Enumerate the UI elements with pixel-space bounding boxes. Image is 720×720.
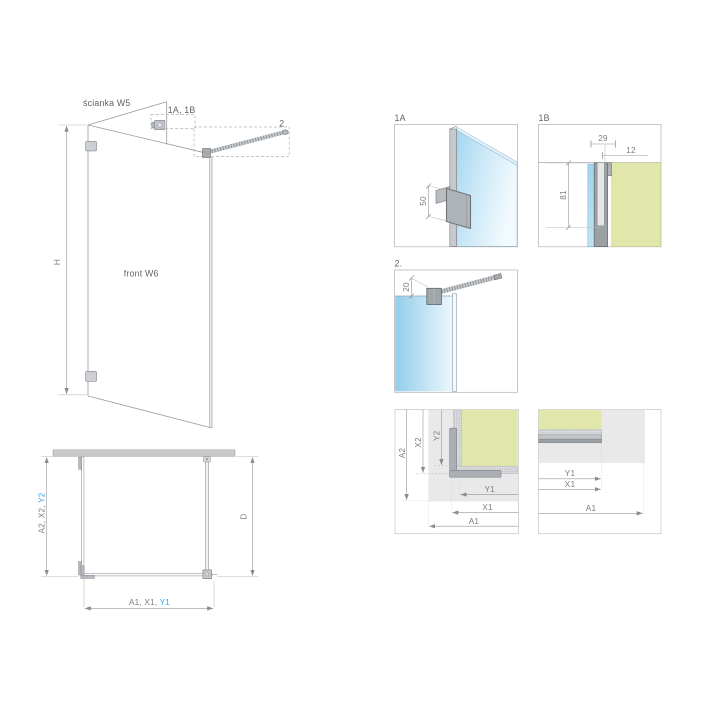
x2-label: X2 — [414, 437, 423, 448]
glass-edge-strip-2 — [452, 294, 456, 392]
detail-2-title: 2. — [395, 259, 403, 269]
detail-1a: 1A 50 — [395, 113, 518, 247]
dim81-label: 81 — [559, 190, 568, 200]
w6-panel-plan — [82, 574, 212, 576]
x1-label-2: X1 — [565, 480, 576, 489]
plan-view: A2, X2, Y2 D A1, X1, Y1 — [37, 450, 258, 609]
detail-1a-title: 1A — [395, 113, 406, 123]
callout-label-1ab: 1A, 1B — [168, 105, 196, 115]
glass-pane-2 — [395, 296, 452, 391]
corner-connector-h — [81, 575, 95, 578]
wall-dimension-diagram: Y1 X1 A1 — [538, 410, 661, 534]
dim50-label: 50 — [419, 196, 428, 206]
profile-strip-dark — [539, 439, 602, 443]
detail-2: 2. 20 — [395, 259, 518, 393]
edge-profile-1a — [450, 129, 457, 246]
corner-dimension-diagram: A2 X2 Y2 Y1 X1 A1 — [395, 410, 518, 534]
a1-label: A1 — [469, 517, 480, 526]
callout-label-2: 2 — [279, 118, 284, 128]
profile-strip-light — [539, 435, 602, 439]
wall-bracket-screw — [157, 123, 162, 128]
a1-label-2: A1 — [586, 504, 597, 513]
wall-section-plan — [539, 410, 602, 430]
w5-bracket-top-plan — [79, 457, 82, 469]
bottom-dimension-label: A1, X1, Y1 — [129, 598, 170, 607]
detail-1b: 1B 29 12 81 — [539, 113, 662, 247]
w5-panel-plan — [82, 456, 84, 576]
glass-section-1b — [588, 164, 594, 247]
wall-section-1b — [612, 163, 661, 247]
y1-label-2: Y1 — [565, 469, 576, 478]
front-panel-label: front W6 — [124, 268, 159, 278]
y1-label: Y1 — [485, 485, 496, 494]
view-3d: ścianka W5 1A, 1B 2 H front W6 — [53, 98, 289, 428]
wall-panel-label: ścianka W5 — [83, 98, 130, 108]
h-extension-lines — [59, 125, 87, 395]
h-dimension-label: H — [53, 259, 62, 265]
arm-wall-mount — [282, 130, 288, 135]
bracket-pad-1a — [447, 189, 471, 229]
depth-dimension-label: D — [240, 513, 249, 519]
edge-bracket-bottom — [86, 371, 97, 381]
glass-strip-plan — [539, 430, 602, 435]
dim20-label: 20 — [402, 282, 411, 292]
dim12-label: 12 — [626, 146, 636, 155]
dim29-label: 29 — [598, 134, 608, 143]
corner-profile-v — [450, 428, 457, 477]
arm-clamp-screw-plan — [206, 573, 209, 576]
y2-label: Y2 — [433, 430, 442, 441]
drawing-sheet: ścianka W5 1A, 1B 2 H front W6 — [0, 0, 720, 720]
a2-label: A2 — [398, 448, 407, 459]
arm-mount-screw-plan — [206, 458, 208, 460]
wall-bar — [53, 450, 235, 457]
bracket-slot-1b — [597, 163, 604, 226]
corner-profile-h — [450, 470, 501, 477]
support-arm-stripes — [207, 132, 284, 152]
wall-corner — [462, 410, 518, 466]
arm-glass-clamp — [203, 149, 211, 158]
support-arm-plan — [205, 456, 208, 570]
left-dimension-label: A2, X2, Y2 — [37, 492, 46, 533]
detail-1b-title: 1B — [539, 113, 550, 123]
x1-label: X1 — [482, 503, 493, 512]
technical-drawing: ścianka W5 1A, 1B 2 H front W6 — [0, 0, 720, 720]
bracket-hook-1b — [608, 163, 612, 176]
edge-bracket-top — [86, 141, 97, 151]
